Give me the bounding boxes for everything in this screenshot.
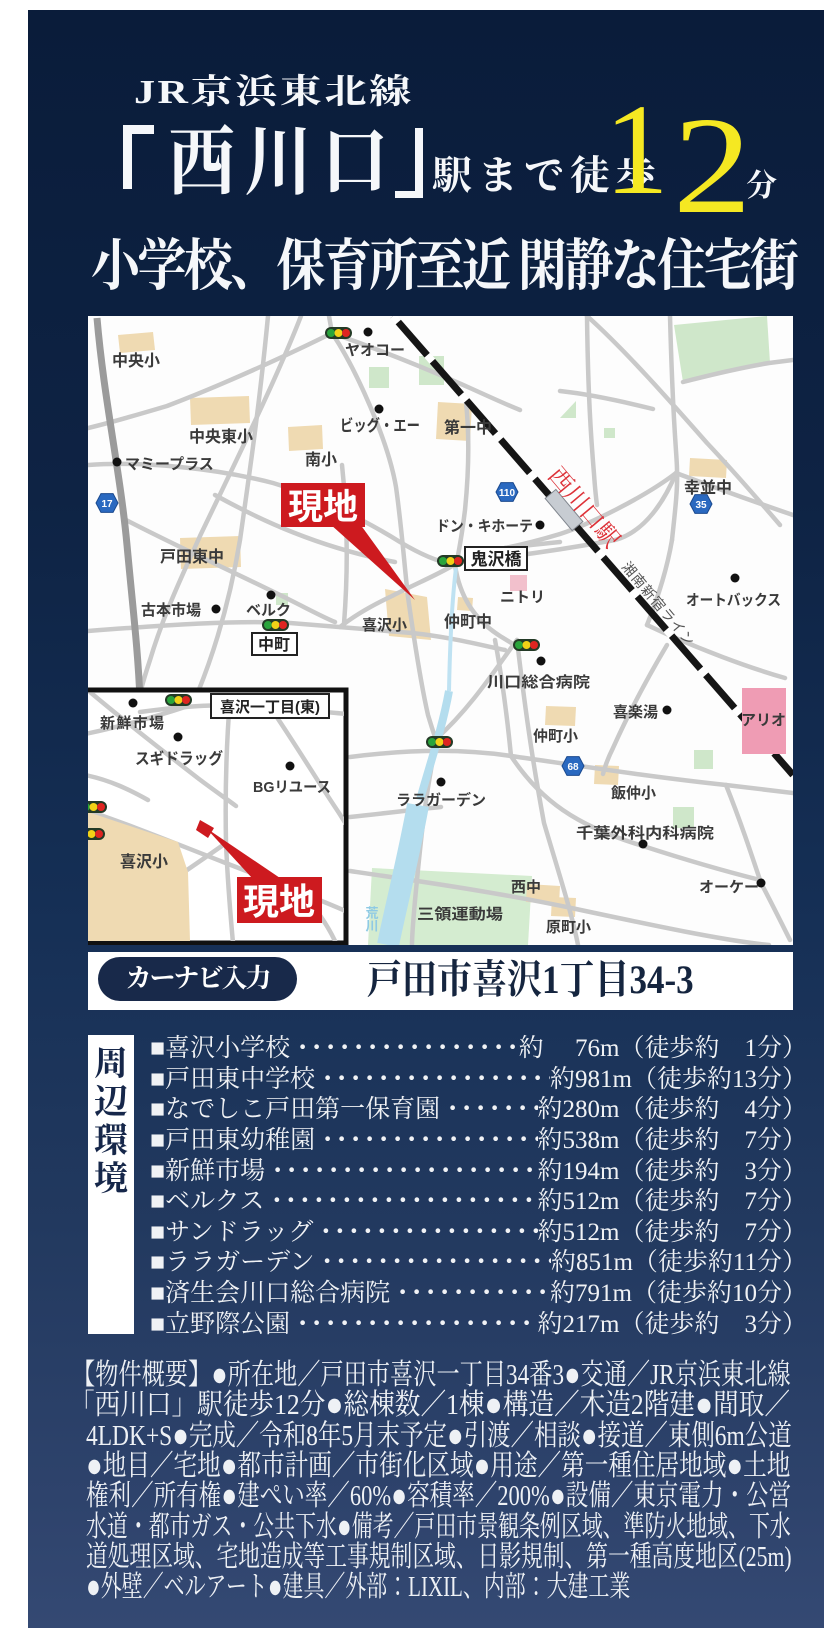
svg-text:仲町中: 仲町中 xyxy=(444,613,492,631)
svg-text:喜沢一丁目(東): 喜沢一丁目(東) xyxy=(220,698,320,716)
svg-text:35: 35 xyxy=(695,500,707,511)
svg-text:ベルク: ベルク xyxy=(246,602,291,619)
svg-text:アリオ: アリオ xyxy=(741,712,786,729)
svg-text:喜沢小: 喜沢小 xyxy=(362,616,407,634)
svg-text:喜沢小: 喜沢小 xyxy=(120,852,168,871)
svg-text:第一中: 第一中 xyxy=(444,418,492,437)
svg-text:南小: 南小 xyxy=(305,451,337,469)
svg-text:鬼沢橋: 鬼沢橋 xyxy=(471,549,522,569)
svg-text:BGリユース: BGリユース xyxy=(253,779,331,796)
svg-text:中町: 中町 xyxy=(258,636,290,654)
svg-text:川口総合病院: 川口総合病院 xyxy=(487,674,590,691)
svg-text:飯仲小: 飯仲小 xyxy=(611,785,656,802)
svg-text:マミープラス: マミープラス xyxy=(125,456,214,473)
svg-text:ヤオコー: ヤオコー xyxy=(345,342,405,359)
svg-text:ニトリ: ニトリ xyxy=(500,589,545,606)
svg-text:ビッグ・エー: ビッグ・エー xyxy=(340,416,420,435)
svg-text:戸田東中: 戸田東中 xyxy=(160,547,224,566)
svg-text:幸並中: 幸並中 xyxy=(684,479,732,497)
svg-text:西中: 西中 xyxy=(511,879,541,896)
svg-text:三領運動場: 三領運動場 xyxy=(417,905,503,923)
svg-text:110: 110 xyxy=(499,488,516,499)
svg-text:中央小: 中央小 xyxy=(112,352,160,370)
svg-text:新鮮市場: 新鮮市場 xyxy=(100,714,164,732)
svg-text:千葉外科内科病院: 千葉外科内科病院 xyxy=(576,824,714,842)
svg-text:古本市場: 古本市場 xyxy=(141,601,201,619)
svg-text:現地: 現地 xyxy=(288,488,358,527)
svg-text:ドン・キホーテ: ドン・キホーテ xyxy=(436,518,533,535)
svg-text:荒川: 荒川 xyxy=(364,905,379,932)
svg-text:68: 68 xyxy=(567,762,579,773)
svg-text:オーケー: オーケー xyxy=(699,879,759,896)
svg-text:スギドラッグ: スギドラッグ xyxy=(135,749,223,768)
svg-text:中央東小: 中央東小 xyxy=(189,427,253,446)
svg-text:17: 17 xyxy=(101,499,113,510)
svg-text:喜楽湯: 喜楽湯 xyxy=(613,703,658,721)
svg-text:オートバックス: オートバックス xyxy=(686,592,781,609)
svg-text:ララガーデン: ララガーデン xyxy=(396,791,486,809)
svg-text:現地: 現地 xyxy=(243,881,315,922)
svg-text:原町小: 原町小 xyxy=(546,919,591,936)
svg-text:仲町小: 仲町小 xyxy=(533,728,578,745)
